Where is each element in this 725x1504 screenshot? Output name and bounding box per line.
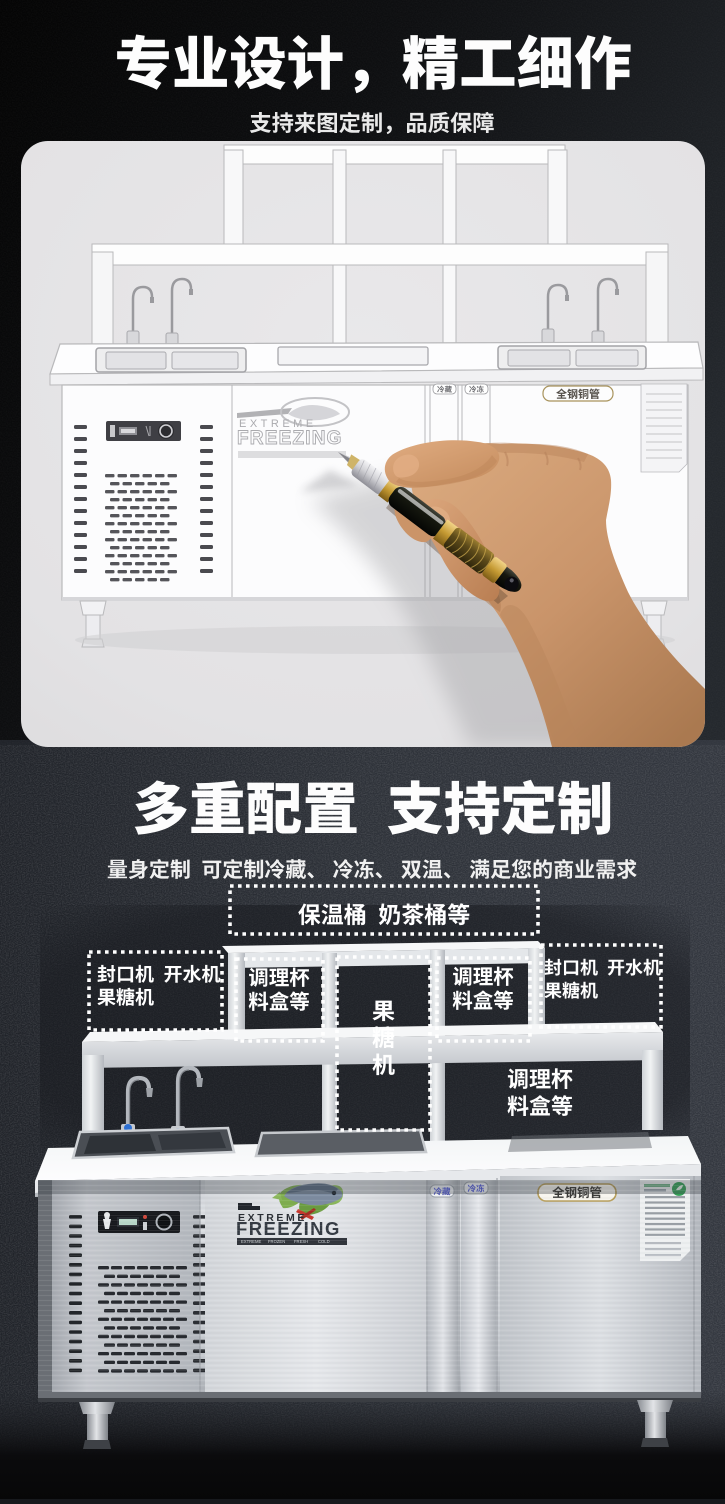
- svg-text:FREEZING: FREEZING: [237, 428, 343, 449]
